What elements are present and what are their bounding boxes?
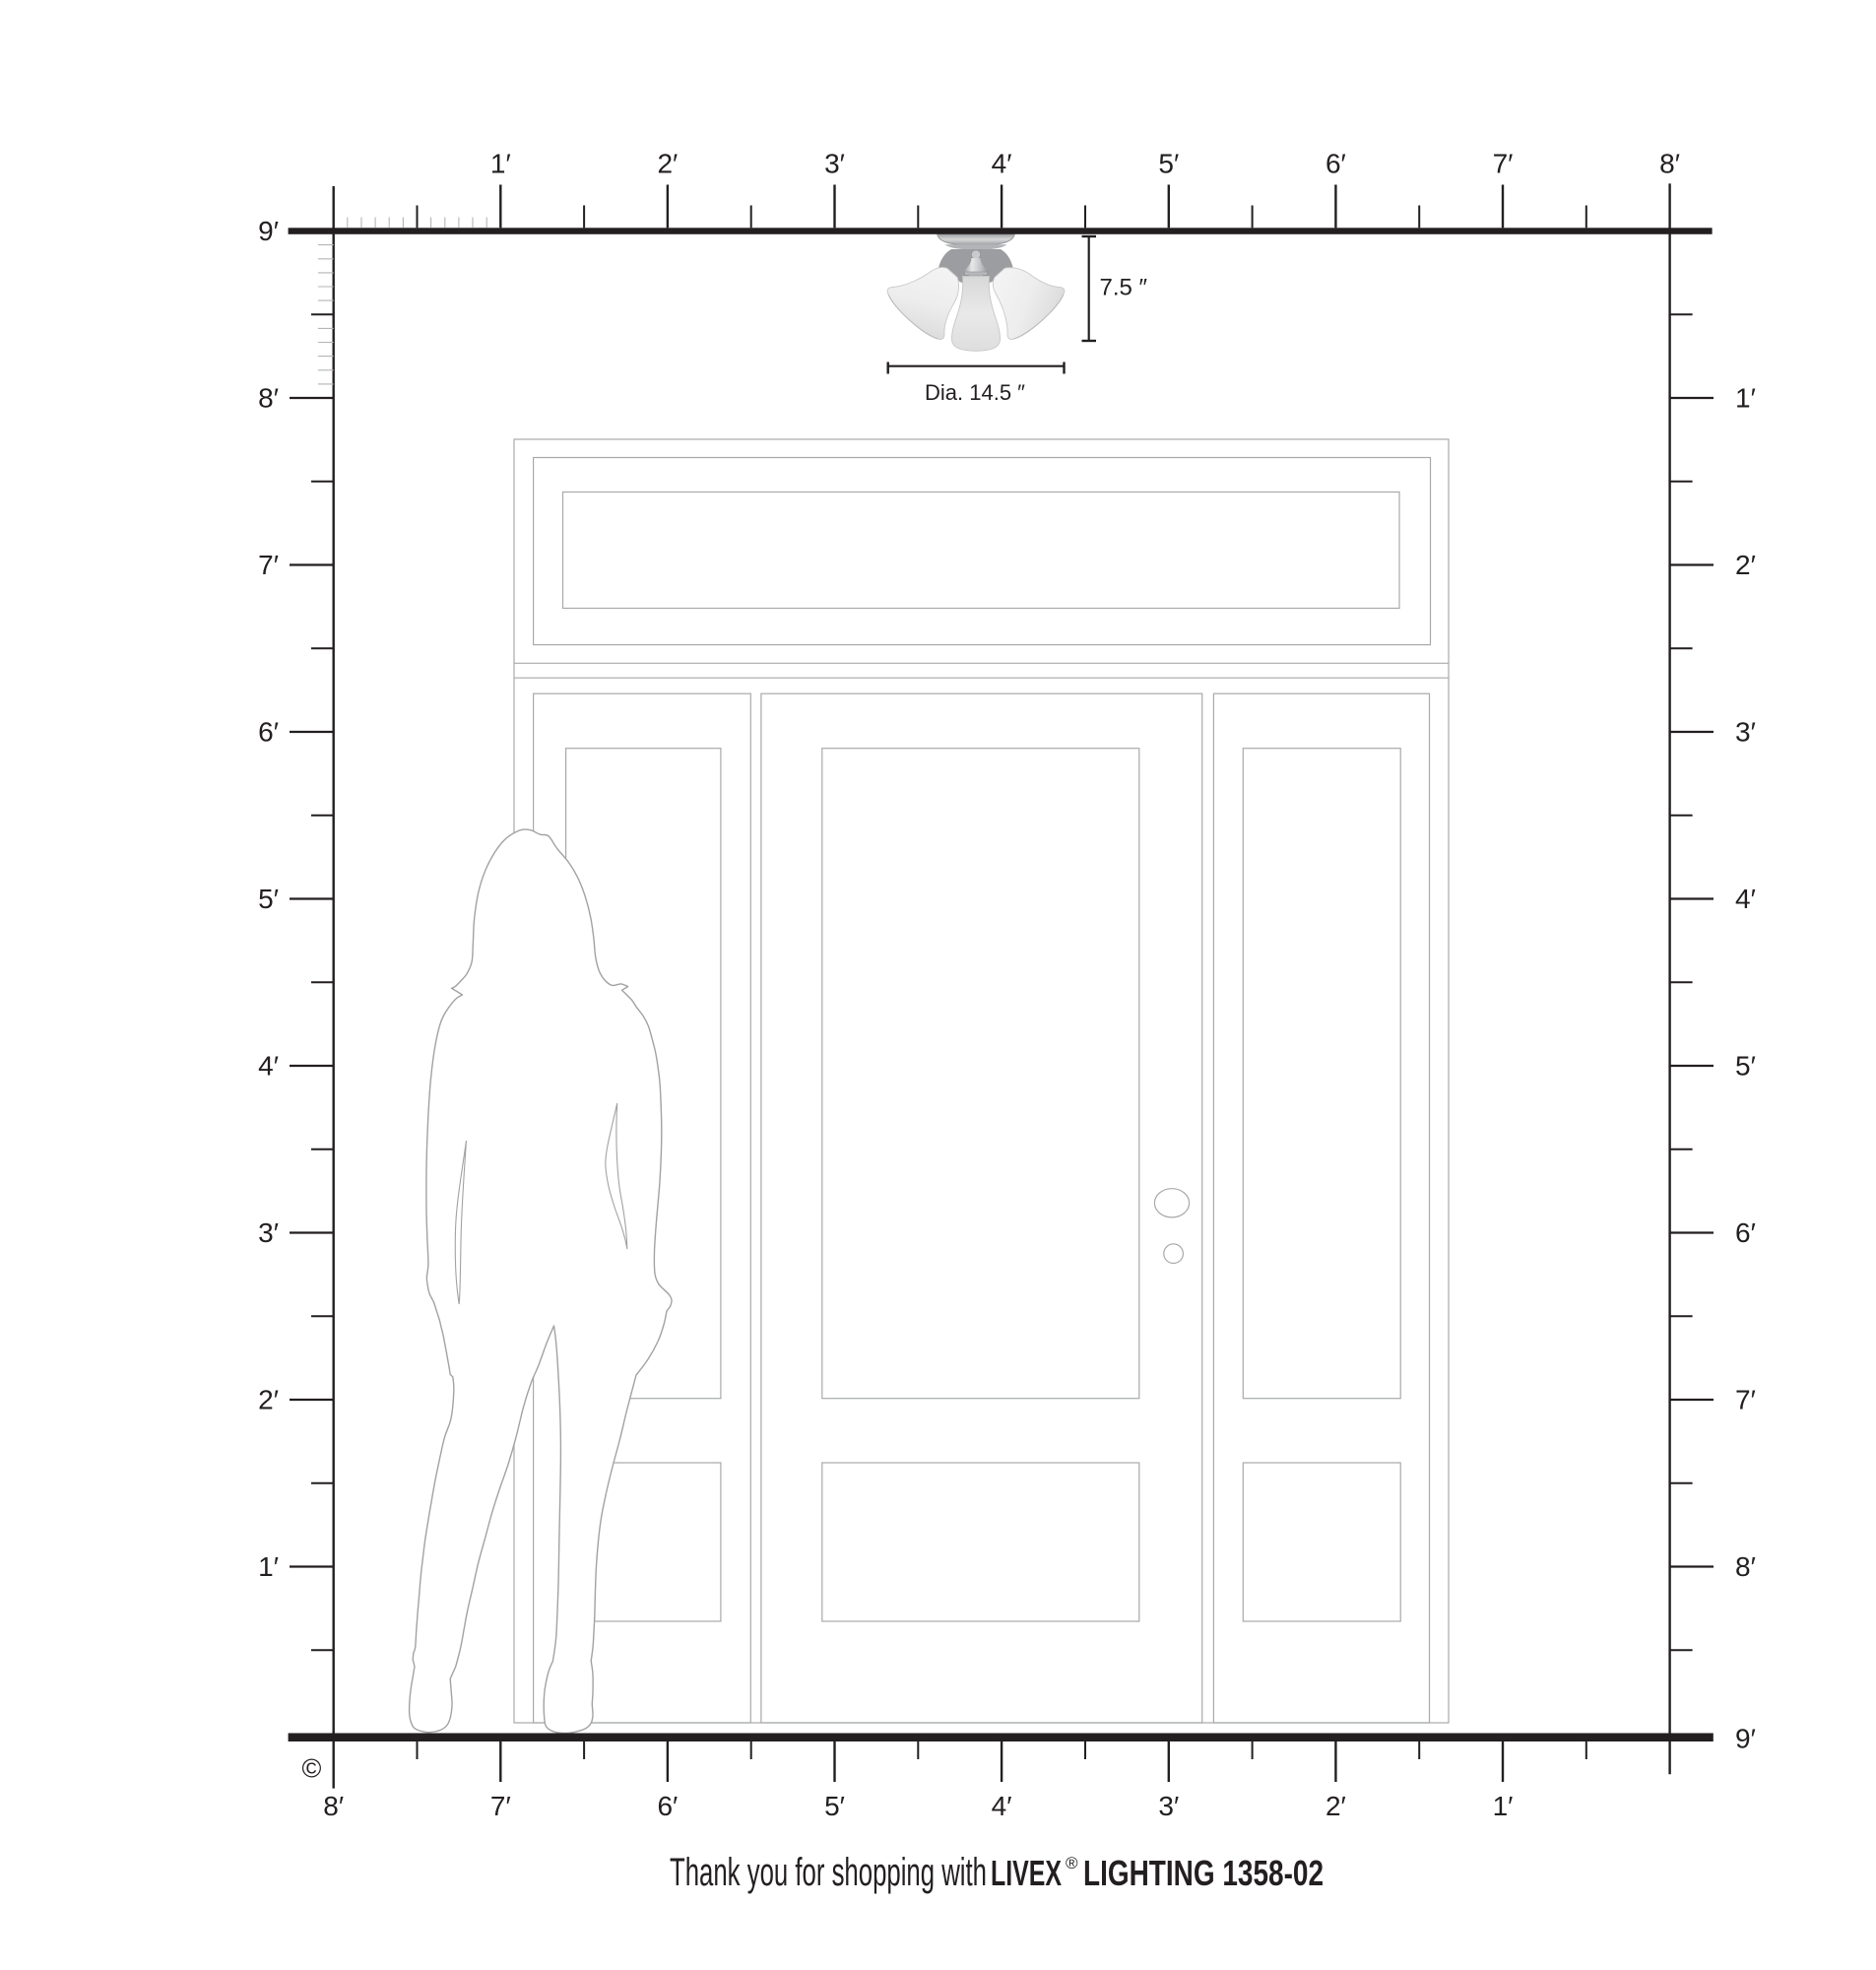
svg-text:4′: 4′: [258, 1051, 279, 1082]
svg-text:7′: 7′: [1735, 1385, 1756, 1415]
svg-text:4′: 4′: [992, 149, 1012, 179]
svg-text:7′: 7′: [1493, 149, 1514, 179]
svg-text:2′: 2′: [1735, 550, 1756, 580]
svg-text:8′: 8′: [1735, 1551, 1756, 1582]
svg-text:6′: 6′: [1326, 149, 1346, 179]
svg-text:3′: 3′: [824, 149, 845, 179]
svg-text:5′: 5′: [1158, 149, 1179, 179]
svg-text:3′: 3′: [258, 1217, 279, 1248]
svg-text:1′: 1′: [490, 149, 511, 179]
svg-text:8′: 8′: [1659, 149, 1680, 179]
svg-text:3′: 3′: [1158, 1791, 1179, 1821]
svg-text:1′: 1′: [1493, 1791, 1514, 1821]
svg-text:LIGHTING 1358-02: LIGHTING 1358-02: [1083, 1853, 1324, 1893]
svg-text:4′: 4′: [1735, 884, 1756, 914]
svg-text:9′: 9′: [1735, 1724, 1756, 1754]
svg-text:Dia. 14.5 ″: Dia. 14.5 ″: [925, 380, 1025, 405]
svg-text:1′: 1′: [258, 1551, 279, 1582]
svg-text:5′: 5′: [1735, 1051, 1756, 1082]
svg-text:2′: 2′: [258, 1385, 279, 1415]
svg-text:7′: 7′: [258, 550, 279, 580]
svg-text:1′: 1′: [1735, 383, 1756, 414]
svg-text:5′: 5′: [258, 884, 279, 914]
svg-text:7.5 ″: 7.5 ″: [1100, 275, 1148, 301]
svg-text:3′: 3′: [1735, 717, 1756, 748]
svg-text:7′: 7′: [490, 1791, 511, 1821]
svg-text:8′: 8′: [323, 1791, 344, 1821]
svg-text:6′: 6′: [258, 717, 279, 748]
svg-text:6′: 6′: [1735, 1217, 1756, 1248]
svg-text:2′: 2′: [657, 149, 678, 179]
svg-text:4′: 4′: [992, 1791, 1012, 1821]
svg-text:Thank you for shopping with: Thank you for shopping with: [670, 1851, 987, 1894]
svg-text:9′: 9′: [258, 216, 279, 246]
svg-text:®: ®: [1066, 1854, 1078, 1872]
svg-text:©: ©: [302, 1754, 322, 1784]
svg-text:5′: 5′: [824, 1791, 845, 1821]
svg-text:2′: 2′: [1326, 1791, 1346, 1821]
svg-text:8′: 8′: [258, 383, 279, 414]
svg-text:LIVEX: LIVEX: [991, 1853, 1062, 1893]
svg-text:6′: 6′: [657, 1791, 678, 1821]
